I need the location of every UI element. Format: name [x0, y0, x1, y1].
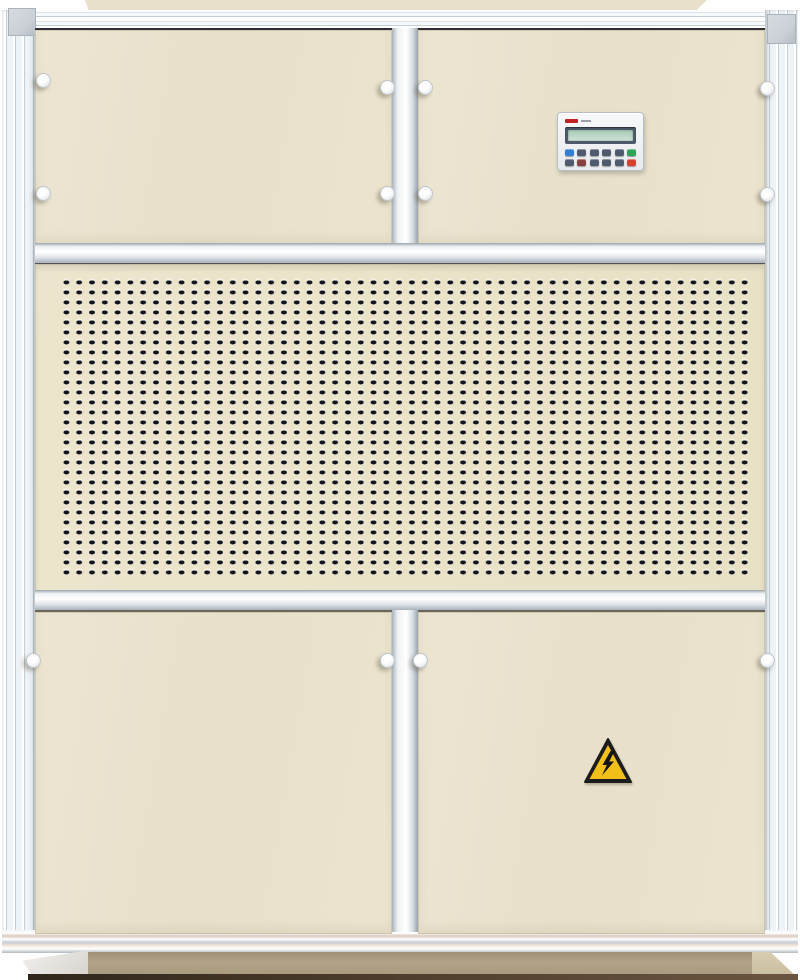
frame-rail-right — [765, 10, 798, 953]
latch-knob — [760, 81, 775, 96]
latch-knob — [760, 653, 775, 668]
latch-knob — [380, 80, 395, 95]
controller-button — [615, 159, 624, 166]
controller-button-blue — [565, 149, 574, 156]
base-plinth — [88, 952, 770, 975]
crossrail-upper — [35, 243, 765, 263]
mullion-top — [392, 28, 418, 243]
lcd-screen — [568, 130, 633, 141]
controller-button — [615, 149, 624, 156]
frame-rail-top — [2, 10, 798, 29]
controller-button-red — [627, 159, 636, 166]
latch-knob — [26, 653, 41, 668]
lcd-display — [565, 127, 636, 144]
latch-knob — [760, 187, 775, 202]
high-voltage-warning-icon — [584, 738, 632, 784]
controller-button-maroon — [577, 159, 586, 166]
door-panel-bottom-left — [35, 610, 392, 934]
latch-knob — [380, 653, 395, 668]
equipment-photo — [0, 0, 800, 980]
corner-bracket-top-left — [8, 8, 36, 36]
controller-button — [590, 149, 599, 156]
controller-button-row-2 — [565, 159, 636, 166]
louver-grille-panel — [35, 263, 765, 591]
controller-button — [590, 159, 599, 166]
crossrail-lower — [35, 590, 765, 610]
grille-perforation — [60, 277, 749, 578]
latch-knob — [380, 186, 395, 201]
controller-button — [565, 159, 574, 166]
controller-button — [602, 149, 611, 156]
corner-bracket-top-right — [767, 14, 796, 44]
controller-button — [577, 149, 586, 156]
latch-knob — [418, 186, 433, 201]
door-panel-top-left — [35, 28, 392, 245]
latch-knob — [413, 653, 428, 668]
controller-button-green — [627, 149, 636, 156]
controller-button-row-1 — [565, 149, 636, 156]
latch-knob — [36, 73, 51, 88]
frame-rail-left — [2, 10, 35, 953]
latch-knob — [418, 80, 433, 95]
controller-brand-logo — [565, 119, 591, 124]
latch-knob — [36, 186, 51, 201]
floor-left — [22, 950, 90, 974]
ground-shadow-line — [28, 974, 798, 980]
controller-button — [602, 159, 611, 166]
controller-panel — [557, 112, 644, 171]
